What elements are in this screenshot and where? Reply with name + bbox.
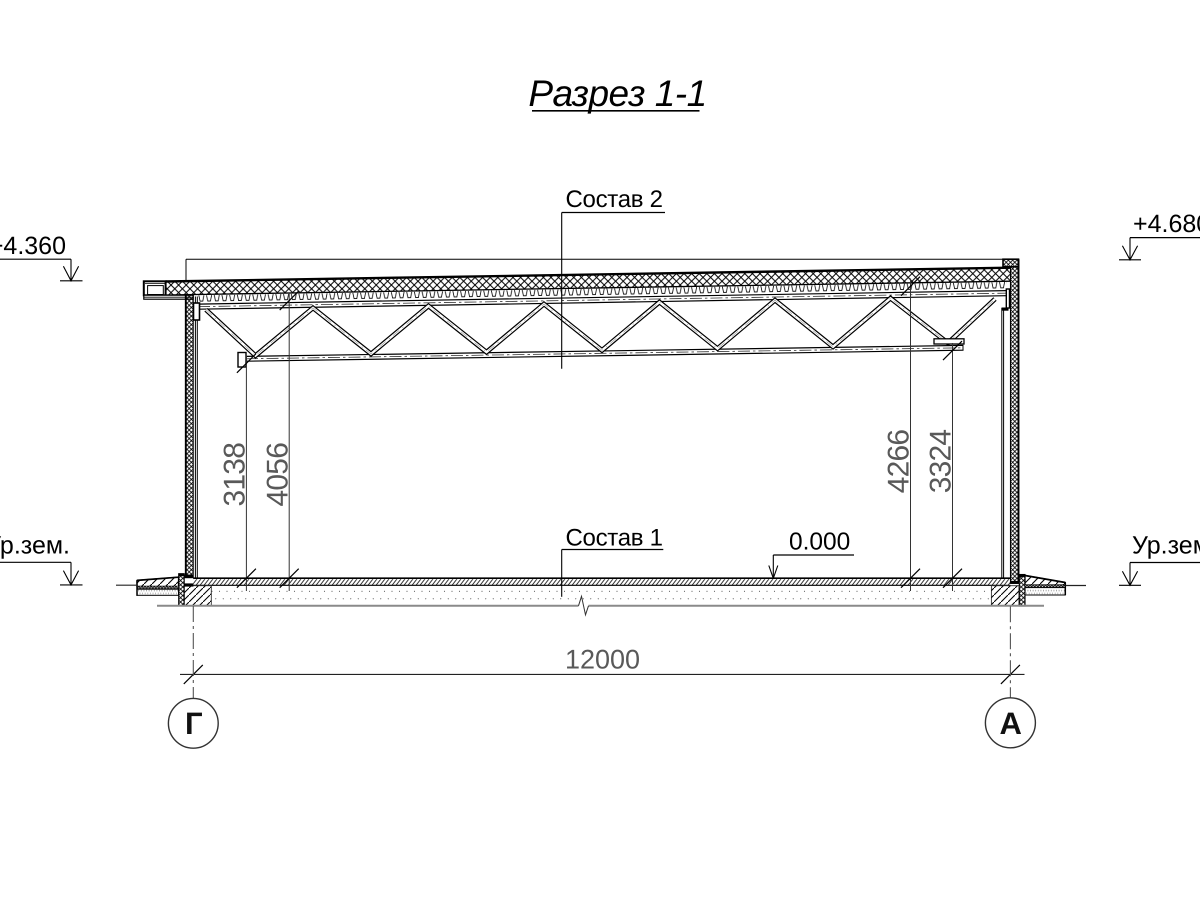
svg-text:Ур.зем.: Ур.зем. [1132, 532, 1200, 560]
svg-text:Состав 1: Состав 1 [566, 525, 663, 552]
svg-text:+4.680: +4.680 [1133, 210, 1200, 238]
svg-text:Разрез 1-1: Разрез 1-1 [528, 73, 706, 114]
svg-text:4266: 4266 [883, 430, 916, 494]
svg-text:3138: 3138 [219, 443, 252, 507]
svg-text:3324: 3324 [925, 430, 958, 494]
svg-text:+4.360: +4.360 [0, 232, 66, 260]
svg-text:А: А [1000, 706, 1022, 741]
svg-text:12000: 12000 [565, 645, 640, 675]
svg-text:Состав 2: Состав 2 [566, 186, 663, 213]
svg-text:0.000: 0.000 [789, 529, 850, 556]
svg-text:4056: 4056 [261, 443, 294, 507]
svg-text:Ур.зем.: Ур.зем. [0, 532, 70, 560]
svg-text:Г: Г [185, 706, 203, 741]
